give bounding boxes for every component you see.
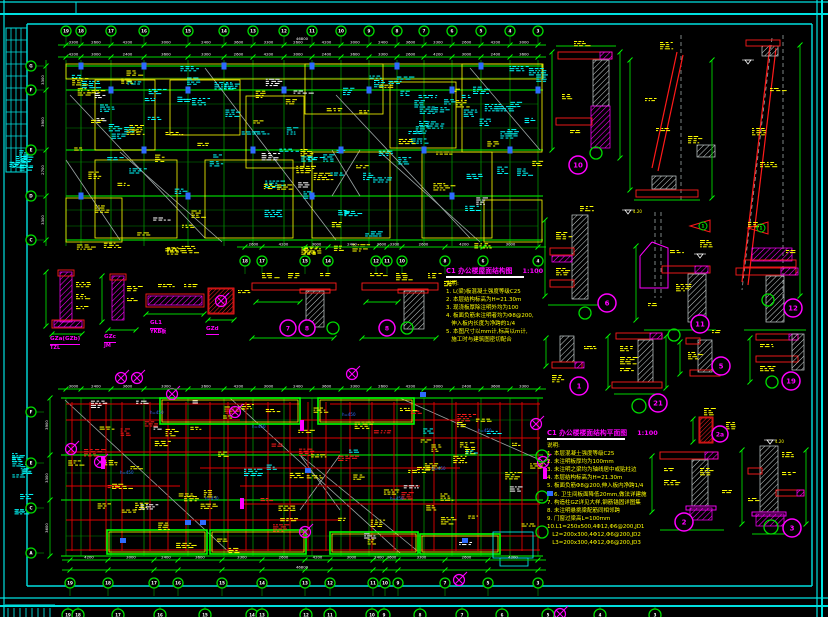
detail-bubble-number: 8 [385,325,389,332]
annotation-cluster [132,130,137,131]
detail-label: GL1YKB板 [150,320,166,335]
annotation-cluster [700,246,702,247]
cut-flag-bar [240,498,244,509]
annotation-cluster [225,413,228,414]
column-marker [282,87,287,94]
detail-outline [636,190,698,197]
annotation-cluster [187,80,192,81]
annotation-cluster [510,491,515,492]
annotation-cluster [303,182,308,183]
annotation-cluster [691,352,695,353]
annotation-cluster [135,505,139,506]
annotation-cluster [709,244,711,245]
axis-bubble-label: 6 [482,259,485,264]
annotation-cluster [196,215,198,216]
annotation-cluster [16,160,20,161]
annotation-cluster [394,489,399,490]
annotation-cluster [665,46,669,47]
hatch-fill [792,334,804,370]
annotation-cluster [133,300,137,301]
annotation-cluster [384,489,389,490]
dim-number: 3000 [462,52,472,57]
annotation-cluster [590,206,594,207]
annotation-cluster [75,465,78,466]
annotation-cluster [374,432,379,433]
annotation-cluster [376,78,378,79]
annotation-cluster [559,375,562,376]
annotation-cluster [81,306,83,307]
annotation-cluster [180,250,182,251]
annotation-cluster [310,247,314,248]
annotation-cluster [148,119,150,120]
annotation-cluster [522,526,527,527]
annotation-cluster [187,77,192,78]
annotation-cluster [164,529,167,530]
annotation-cluster [147,508,149,509]
annotation-cluster [314,157,318,158]
annotation-cluster [170,250,173,251]
annotation-cluster [314,408,319,409]
annotation-cluster [480,119,484,120]
annotation-cluster [402,279,407,280]
annotation-cluster [191,215,195,216]
annotation-cluster [374,273,378,274]
annotation-cluster [150,508,153,509]
annotation-cluster [84,296,86,297]
annotation-cluster [766,344,769,345]
annotation-cluster [12,461,14,462]
annotation-cluster [648,305,650,306]
annotation-cluster [125,428,130,429]
annotation-cluster [462,414,467,415]
annotation-cluster [184,498,187,499]
annotation-cluster [300,168,303,169]
note-line: 4. 本层结构标高为H=21.30m [547,475,677,483]
annotation-cluster [156,504,159,505]
axis-bubble-label: 11 [327,613,333,617]
detail-sublabel: TZL [50,345,80,351]
annotation-cluster [486,123,488,124]
annotation-cluster [221,84,223,85]
annotation-cluster [136,134,140,135]
annotation-cluster [214,82,216,83]
annotation-cluster [229,116,233,117]
annotation-cluster [283,529,287,530]
annotation-cluster [379,87,383,88]
annotation-cluster [22,470,27,471]
annotation-cluster [420,128,425,129]
dim-number: 2600 [406,52,416,57]
annotation-cluster [93,178,95,179]
annotation-cluster [85,298,90,299]
annotation-cluster [17,167,22,168]
annotation-cluster [537,72,539,73]
dim-number: 3600 [350,52,360,57]
hatch-fill [591,106,610,148]
dim-number: 3000 [347,555,357,560]
annotation-cluster [752,130,755,131]
annotation-cluster [72,78,77,79]
annotation-cluster [176,252,179,253]
annotation-cluster [301,156,306,157]
annotation-cluster [415,411,419,412]
annotation-cluster [715,332,720,333]
axis-bubble-label: F [30,88,33,93]
annotation-cluster [127,300,132,301]
note-line: L3=200x300,4Φ12,Φ6@200,JD3 [547,540,677,548]
annotation-cluster [257,475,261,476]
annotation-cluster [671,42,673,43]
annotation-cluster [87,90,89,91]
annotation-cluster [486,93,489,94]
annotation-cluster [423,121,427,122]
annotation-cluster [109,126,113,127]
annotation-cluster [693,142,696,143]
annotation-cluster [566,96,570,97]
annotation-cluster [81,80,83,81]
annotation-cluster [201,508,203,509]
annotation-cluster [435,107,438,108]
annotation-cluster [360,426,363,427]
annotation-cluster [311,253,316,254]
annotation-cluster [312,475,317,476]
annotation-cluster [126,433,129,434]
annotation-cluster [433,187,435,188]
axis-bubble-label: 3 [537,29,540,34]
annotation-cluster [20,513,22,514]
annotation-cluster [275,83,280,84]
annotation-cluster [20,474,23,475]
hatch-fill [692,460,708,506]
annotation-cluster [359,251,361,252]
annotation-cluster [182,547,186,548]
annotation-cluster [563,238,567,239]
annotation-cluster [146,234,150,235]
dim-number: 2600 [462,555,472,560]
annotation-cluster [262,153,266,154]
annotation-cluster [171,132,174,133]
annotation-cluster [84,455,86,456]
annotation-cluster [77,80,80,81]
annotation-cluster [539,161,544,162]
annotation-cluster [244,475,248,476]
annotation-cluster [97,81,100,82]
annotation-cluster [425,143,429,144]
annotation-cluster [760,166,763,167]
annotation-cluster [373,182,375,183]
annotation-cluster [660,44,665,45]
annotation-cluster [508,135,513,136]
beam-depth-label: h=450 [120,470,134,475]
annotation-cluster [392,492,395,493]
annotation-cluster [365,235,368,236]
annotation-cluster [556,238,561,239]
annotation-cluster [155,441,159,442]
dim-number: 3000 [293,52,303,57]
highlight-marker [547,491,553,496]
dim-number: 3600 [322,384,332,389]
annotation-cluster [700,242,705,243]
annotation-cluster [281,189,286,190]
annotation-cluster [115,487,119,488]
annotation-cluster [136,132,138,133]
annotation-cluster [694,354,696,355]
annotation-cluster [676,250,678,251]
annotation-cluster [344,214,346,215]
column-marker [79,193,84,200]
annotation-cluster [397,492,399,493]
annotation-cluster [199,210,201,211]
annotation-cluster [379,85,383,86]
annotation-cluster [182,543,186,544]
annotation-cluster [74,150,79,151]
annotation-cluster [434,509,437,510]
annotation-cluster [474,247,478,248]
annotation-cluster [377,76,381,77]
annotation-cluster [100,429,105,430]
annotation-cluster [188,284,191,285]
hatch-fill [695,266,708,273]
annotation-cluster [466,444,468,445]
annotation-cluster [405,93,407,94]
title-underline [547,438,625,440]
annotation-cluster [106,210,109,211]
annotation-cluster [124,129,127,130]
annotation-cluster [132,75,136,76]
annotation-cluster [521,68,524,69]
annotation-cluster [306,166,310,167]
annotation-cluster [775,164,777,165]
annotation-cluster [500,133,502,134]
annotation-cluster [287,184,292,185]
annotation-cluster [82,87,87,88]
annotation-cluster [420,109,423,110]
annotation-cluster [291,520,296,521]
annotation-cluster [307,191,311,192]
annotation-cluster [306,158,310,159]
annotation-cluster [140,403,142,404]
annotation-cluster [91,90,94,91]
annotation-cluster [626,359,628,360]
annotation-cluster [472,518,475,519]
note-line: 6. 卫生间板面降低20mm,做法详建施 [547,491,677,500]
annotation-cluster [423,467,425,468]
annotation-cluster [114,485,118,486]
annotation-cluster [509,478,513,479]
annotation-cluster [137,232,142,233]
axis-bubble-label: 14 [249,613,255,617]
annotation-cluster [109,128,111,129]
annotation-cluster [283,508,285,509]
annotation-cluster [517,106,520,107]
line [125,370,129,374]
dim-number: 2600 [249,242,259,247]
annotation-cluster [128,512,131,513]
annotation-cluster [476,202,479,203]
annotation-cluster [365,233,369,234]
annotation-cluster [287,131,289,132]
annotation-cluster [217,541,221,542]
annotation-cluster [432,505,434,506]
axis-bubble-label: 10 [382,581,388,586]
annotation-cluster [171,254,173,255]
annotation-cluster [165,248,170,249]
annotation-cluster [179,493,184,494]
annotation-cluster [584,346,586,347]
annotation-cluster [457,422,462,423]
annotation-cluster [127,290,131,291]
annotation-cluster [254,133,256,134]
annotation-cluster [464,110,469,111]
annotation-cluster [197,143,202,144]
annotation-cluster [517,168,521,169]
annotation-cluster [163,527,168,528]
annotation-cluster [265,181,267,182]
hatch-fill [112,276,124,320]
annotation-cluster [269,181,271,182]
annotation-cluster [423,428,427,429]
annotation-cluster [18,463,20,464]
annotation-cluster [80,296,83,297]
annotation-cluster [774,88,779,89]
annotation-cluster [630,348,632,349]
annotation-cluster [502,171,504,172]
annotation-cluster [135,503,138,504]
column-marker [310,63,315,70]
annotation-cluster [510,472,513,473]
annotation-cluster [96,90,99,91]
annotation-cluster [160,161,164,162]
annotation-cluster [476,419,480,420]
annotation-cluster [508,133,513,134]
annotation-cluster [488,245,490,246]
axis-bubble-label: 17 [151,581,157,586]
annotation-cluster [626,346,628,347]
annotation-cluster [465,416,467,417]
annotation-cluster [355,456,359,457]
annotation-cluster [191,545,196,546]
dim-number: 4200 [84,555,94,560]
annotation-cluster [367,177,372,178]
annotation-cluster [530,468,535,469]
annotation-cluster [516,70,520,71]
annotation-cluster [379,236,382,237]
annotation-cluster [262,273,265,274]
annotation-cluster [706,240,708,241]
annotation-cluster [435,97,437,98]
annotation-cluster [133,512,136,513]
annotation-cluster [257,469,262,470]
annotation-cluster [274,277,279,278]
annotation-cluster [334,250,337,251]
annotation-cluster [311,456,314,457]
annotation-cluster [445,500,450,501]
annotation-cluster [192,98,197,99]
annotation-cluster [383,155,385,156]
annotation-cluster [247,404,250,405]
annotation-cluster [18,461,22,462]
annotation-cluster [373,179,378,180]
annotation-cluster [184,284,186,285]
annotation-cluster [167,249,171,250]
annotation-cluster [535,465,538,466]
annotation-cluster [293,127,298,128]
level-mark [745,60,751,64]
annotation-cluster [354,450,358,451]
dim-number: 4200 [322,40,332,45]
annotation-cluster [517,489,520,490]
annotation-cluster [225,406,230,407]
annotation-cluster [279,151,283,152]
annotation-cluster [225,86,228,87]
annotation-cluster [121,431,123,432]
annotation-cluster [225,84,227,85]
annotation-cluster [305,172,310,173]
annotation-cluster [688,354,691,355]
annotation-cluster [153,426,157,427]
annotation-cluster [68,460,72,461]
annotation-cluster [692,356,697,357]
annotation-cluster [82,83,87,84]
annotation-cluster [266,409,269,410]
annotation-cluster [387,492,390,493]
annotation-cluster [145,100,150,101]
annotation-cluster [518,445,520,446]
annotation-cluster [390,87,393,88]
annotation-cluster [76,286,80,287]
annotation-cluster [409,487,412,488]
annotation-cluster [302,455,306,456]
hatch-fill [638,340,653,382]
detail-bubble-number: 1 [577,382,582,390]
annotation-cluster [427,439,432,440]
annotation-cluster [232,114,234,115]
annotation-cluster [250,475,255,476]
annotation-cluster [229,86,232,87]
note-line: 3. 现浇板厚除注明外均为100 [446,305,548,313]
annotation-cluster [261,500,265,501]
annotation-cluster [16,162,20,163]
annotation-cluster [182,227,184,228]
annotation-cluster [479,245,481,246]
annotation-cluster [457,424,459,425]
annotation-cluster [404,163,409,164]
dim-number: 3600 [123,384,133,389]
axis-bubble-label: 8 [419,613,422,617]
annotation-cluster [12,453,14,454]
annotation-cluster [462,462,464,463]
annotation-cluster [114,247,116,248]
annotation-cluster [131,127,133,128]
annotation-cluster [384,85,388,86]
annotation-cluster [265,210,269,211]
annotation-cluster [126,83,128,84]
section-flag-number: 1 [759,226,762,232]
column-marker [200,520,206,525]
axis-bubble-label: 10 [338,29,344,34]
annotation-cluster [709,414,714,415]
detail-outline [556,118,592,125]
annotation-cluster [429,463,432,464]
annotation-cluster [287,127,292,128]
annotation-cluster [158,527,161,528]
annotation-cluster [765,166,770,167]
annotation-cluster [380,522,382,523]
hatch-fill [600,52,612,59]
annotation-cluster [398,163,402,164]
annotation-cluster [405,139,407,140]
annotation-cluster [115,464,117,465]
